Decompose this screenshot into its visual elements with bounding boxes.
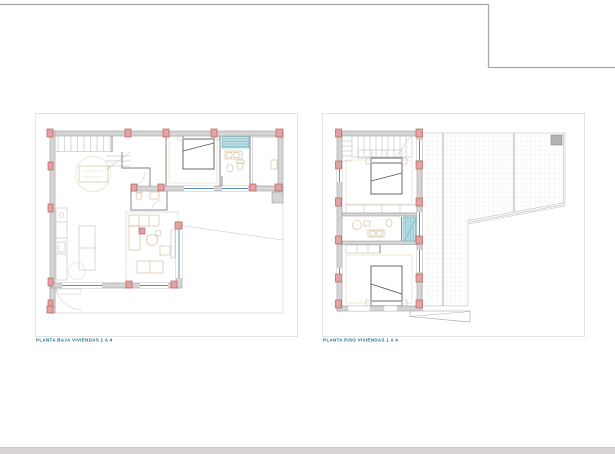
drawing-sheet: PLANTA BAJA VIVIENDAS 1 A 4 — [0, 0, 615, 454]
floorplan-sheet-svg: PLANTA BAJA VIVIENDAS 1 A 4 — [0, 0, 615, 454]
ground-plan-frame — [36, 114, 298, 337]
upper-plan-label: PLANTA PISO VIVIENDAS 1 A 4 — [323, 338, 398, 343]
chimney — [551, 135, 562, 145]
bedroom2 — [366, 266, 407, 306]
upper-floor-plan: PLANTA PISO VIVIENDAS 1 A 4 — [323, 114, 585, 343]
ground-plan-label: PLANTA BAJA VIVIENDAS 1 A 4 — [36, 338, 113, 343]
bedroom-bed — [178, 134, 219, 169]
ground-floor-plan: PLANTA BAJA VIVIENDAS 1 A 4 — [36, 114, 298, 343]
